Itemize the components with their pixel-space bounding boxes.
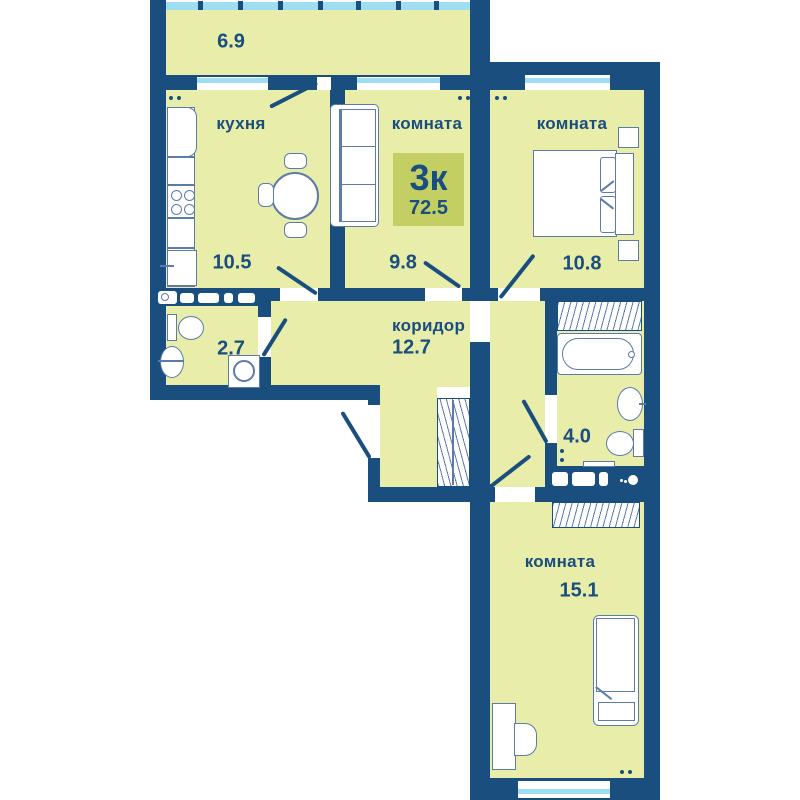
glazing-post [318, 1, 323, 10]
window-glass [357, 78, 440, 83]
wardrobe [557, 301, 642, 331]
socket [495, 96, 499, 100]
nightstand [618, 127, 639, 148]
faucet-knob [628, 475, 638, 485]
socket [458, 96, 462, 100]
bathtub-drain [628, 351, 635, 358]
socket [560, 458, 564, 462]
kitchen-area: 10.5 [213, 252, 252, 275]
washing-machine-drum [233, 360, 255, 382]
wardrobe [552, 502, 640, 528]
closet [437, 398, 470, 487]
bed-blanket [596, 618, 635, 692]
socket [503, 96, 507, 100]
sofa-cushion [341, 184, 376, 222]
glazing-post [356, 1, 361, 10]
shelf-slot [198, 293, 219, 303]
door-opening [495, 487, 535, 502]
stove-burner [171, 204, 182, 215]
socket [177, 96, 181, 100]
kitchen-sink [167, 250, 197, 286]
faucet-knob [161, 293, 169, 301]
shelf-slot [599, 472, 608, 486]
socket [560, 449, 564, 453]
room2-area: 10.8 [563, 253, 602, 276]
window-glass [518, 789, 610, 794]
glazing-post [434, 1, 439, 10]
chair [514, 723, 537, 756]
chair [284, 222, 307, 238]
shelf-slot [572, 472, 595, 486]
room3-label: комната [525, 552, 596, 572]
hallway-floor [490, 301, 545, 487]
bathtub-basin [562, 338, 634, 370]
shelf-slot [238, 293, 255, 303]
room3-area: 15.1 [560, 580, 599, 603]
kitchen-label: кухня [216, 114, 265, 134]
glazing-post [278, 1, 283, 10]
faucet-dot [620, 479, 623, 482]
corridor-label: коридор [392, 316, 465, 336]
stove-burner [184, 190, 195, 201]
basin-faucet [639, 403, 646, 405]
toilet-bowl [178, 316, 204, 340]
chair [284, 153, 307, 169]
glazing-post [238, 1, 243, 10]
room2-label: комната [537, 114, 608, 134]
dining-table [271, 172, 319, 220]
stove-burner [184, 204, 195, 215]
closet-rail [452, 400, 454, 485]
room1-label: комната [392, 114, 463, 134]
entry-door-opening [368, 405, 380, 458]
socket [169, 96, 173, 100]
basin-faucet [158, 360, 184, 362]
counter-divider [167, 247, 195, 249]
wall [470, 62, 490, 800]
sofa-cushion [341, 109, 376, 147]
bed-footboard [598, 702, 635, 721]
desk [492, 703, 516, 770]
corridor-area: 12.7 [392, 337, 431, 360]
faucet-dot [624, 480, 627, 483]
socket [620, 770, 624, 774]
counter-divider [167, 217, 195, 219]
toilet-bowl [606, 431, 634, 456]
corridor-floor [271, 301, 470, 387]
door-opening [425, 288, 462, 301]
door-opening [545, 395, 557, 443]
floor-plan: 6.9 кухня 10.5 комната 9.8 комната 10.8 … [0, 0, 800, 800]
wall [150, 0, 166, 400]
socket [466, 96, 470, 100]
balcony-area: 6.9 [217, 31, 245, 54]
wall [150, 385, 380, 400]
window-glass [197, 78, 268, 83]
sofa-cushion [341, 146, 376, 185]
vestibule-floor [380, 387, 437, 487]
wall [644, 62, 660, 800]
fridge [167, 107, 197, 157]
rooms-count: 3к [409, 160, 447, 196]
bathroom1-area: 2.7 [217, 338, 245, 361]
stove-burner [171, 190, 182, 201]
apartment-type-badge: 3к 72.5 [393, 153, 464, 226]
total-area: 72.5 [409, 196, 448, 220]
glazing-post [198, 1, 203, 10]
bathroom2-area: 4.0 [563, 426, 591, 449]
glazing-post [396, 1, 401, 10]
shelf-slot [552, 472, 568, 486]
doorway [470, 301, 490, 342]
nightstand [618, 240, 639, 261]
bath-mat [583, 461, 615, 467]
window-glass [525, 78, 610, 83]
bed-headboard [615, 153, 634, 235]
counter-divider [167, 184, 195, 186]
socket [628, 770, 632, 774]
washbasin [160, 346, 184, 378]
shelf-slot [180, 293, 194, 303]
balcony-floor [166, 9, 470, 75]
door-opening [317, 77, 331, 90]
toilet-cistern [633, 429, 644, 457]
room1-area: 9.8 [389, 252, 417, 275]
shelf-slot [224, 293, 233, 303]
chair [258, 183, 274, 207]
kitchen-faucet [160, 265, 174, 267]
toilet-cistern [167, 314, 177, 341]
